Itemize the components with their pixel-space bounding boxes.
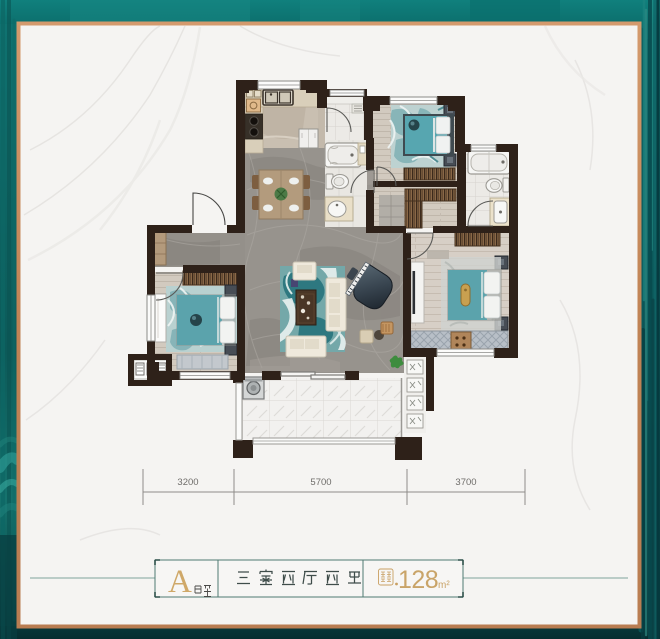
svg-text:m²: m² — [438, 580, 450, 591]
svg-text:3700: 3700 — [455, 477, 476, 488]
svg-text:128: 128 — [398, 566, 438, 594]
svg-text:5700: 5700 — [310, 477, 331, 488]
svg-text:3200: 3200 — [177, 477, 198, 488]
svg-text:A: A — [168, 564, 192, 600]
